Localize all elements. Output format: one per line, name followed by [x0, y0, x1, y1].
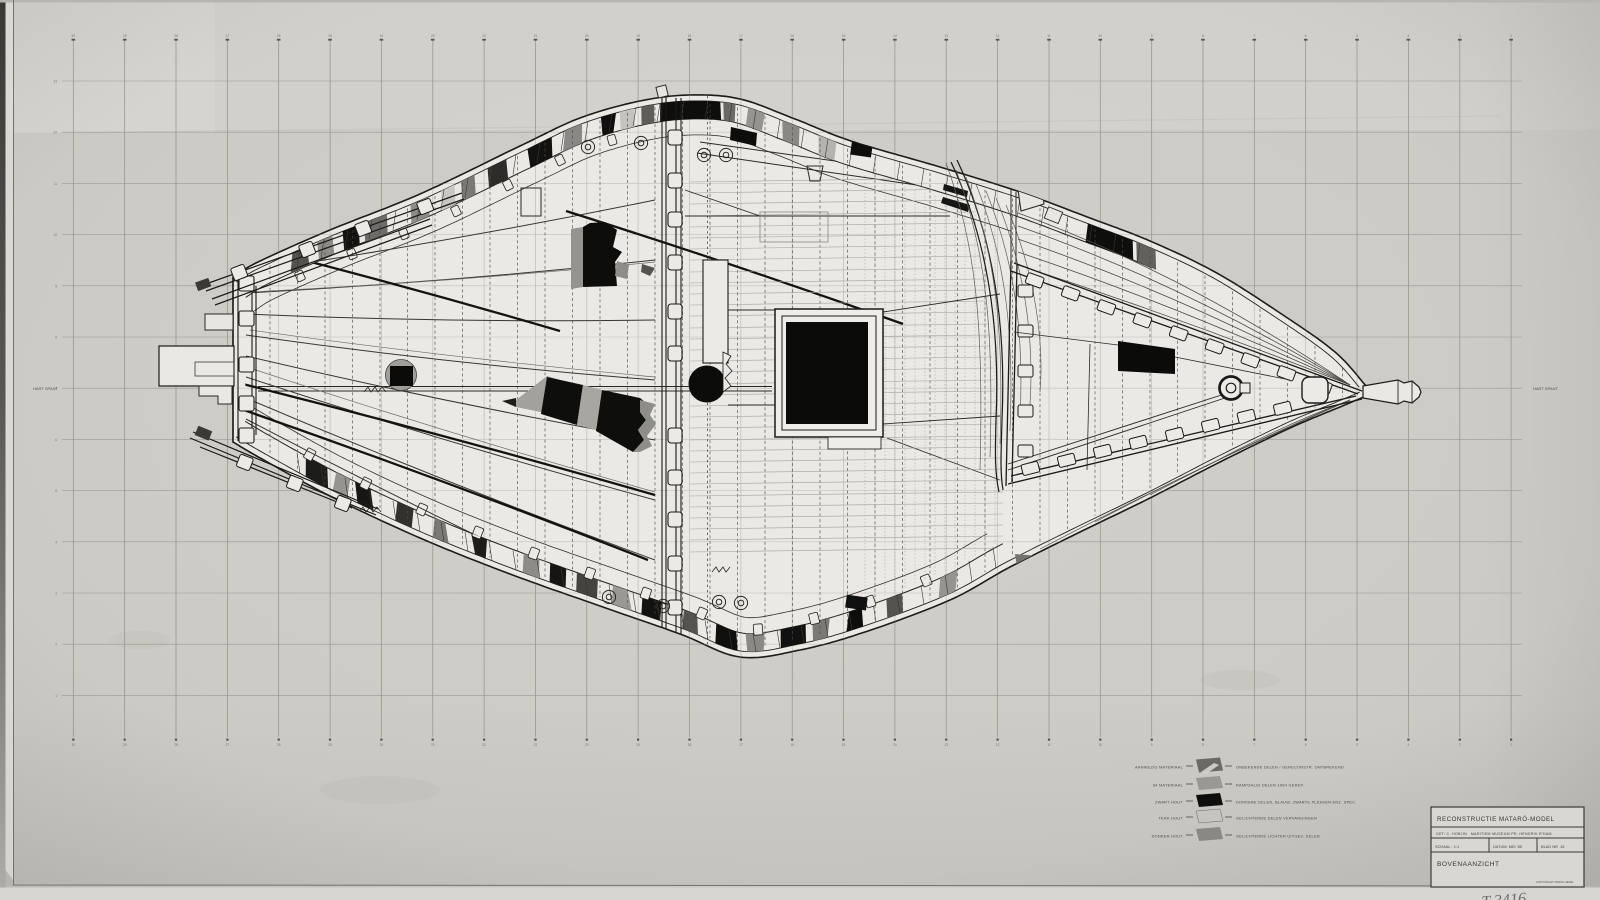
svg-text:RAMPZALIG DELEN 1964 GEREP.: RAMPZALIG DELEN 1964 GEREP.: [1236, 784, 1304, 788]
svg-text:DONKER HOUT: DONKER HOUT: [1152, 835, 1184, 839]
svg-text:64 MATERIAAL: 64 MATERIAAL: [1153, 784, 1183, 788]
svg-text:ONBEKENDE DELEN / GERECONSTR.: ONBEKENDE DELEN / GERECONSTR. ONTBREKEND: [1236, 766, 1344, 770]
svg-text:19: 19: [636, 743, 640, 747]
svg-text:COPYRIGHT PRINS HEND.: COPYRIGHT PRINS HEND.: [1536, 880, 1574, 884]
svg-text:5: 5: [1356, 743, 1358, 747]
svg-text:4: 4: [55, 540, 57, 544]
svg-text:7: 7: [1253, 34, 1255, 38]
svg-text:18: 18: [688, 34, 692, 38]
svg-text:10: 10: [1099, 34, 1103, 38]
svg-text:13: 13: [944, 34, 948, 38]
svg-text:6: 6: [1305, 743, 1307, 747]
svg-text:4: 4: [1408, 34, 1410, 38]
svg-text:23: 23: [431, 743, 435, 747]
svg-text:18: 18: [688, 743, 692, 747]
svg-text:16: 16: [790, 34, 794, 38]
svg-text:26: 26: [277, 34, 281, 38]
svg-text:14: 14: [893, 34, 897, 38]
svg-text:3: 3: [1459, 743, 1461, 747]
svg-text:DONKERE DELEN, BLAUW, ZWARTE P: DONKERE DELEN, BLAUW, ZWARTE PLEKKEN ENZ…: [1236, 801, 1357, 805]
svg-text:4: 4: [1408, 743, 1410, 747]
svg-text:11: 11: [1047, 34, 1051, 38]
svg-text:8: 8: [1202, 34, 1204, 38]
svg-text:GELICHTERDE LICHTER UITGEV. DE: GELICHTERDE LICHTER UITGEV. DELEN: [1236, 835, 1320, 839]
svg-text:TEAK HOUT: TEAK HOUT: [1159, 817, 1184, 821]
svg-text:5: 5: [55, 489, 57, 493]
svg-text:GET: C. HOBIJN MARITIEM MUSE: GET: C. HOBIJN MARITIEM MUSEUM PR. HENDR…: [1436, 832, 1552, 836]
svg-text:29: 29: [123, 34, 127, 38]
svg-text:20: 20: [585, 743, 589, 747]
svg-text:28: 28: [174, 34, 178, 38]
svg-text:SCHAAL: 1:1: SCHAAL: 1:1: [1435, 844, 1459, 849]
svg-text:10: 10: [53, 233, 57, 237]
svg-text:GELICHTERDE DELEN VERVANGINGEN: GELICHTERDE DELEN VERVANGINGEN: [1236, 817, 1317, 821]
svg-text:11: 11: [54, 182, 58, 186]
svg-text:22: 22: [482, 34, 486, 38]
svg-text:1: 1: [55, 694, 57, 698]
svg-text:3: 3: [55, 592, 57, 596]
svg-text:9: 9: [55, 284, 57, 288]
svg-text:DATUM: MEI ’85: DATUM: MEI ’85: [1493, 844, 1522, 849]
svg-text:12: 12: [996, 743, 1000, 747]
svg-text:2: 2: [55, 643, 57, 647]
svg-text:11: 11: [1047, 743, 1051, 747]
svg-text:26: 26: [277, 743, 281, 747]
svg-text:25: 25: [328, 34, 332, 38]
svg-text:5: 5: [1356, 34, 1358, 38]
svg-text:15: 15: [842, 34, 846, 38]
svg-text:RECONSTRUCTIE MATARÓ-MODEL: RECONSTRUCTIE MATARÓ-MODEL: [1437, 816, 1555, 823]
svg-text:2: 2: [1510, 743, 1512, 747]
svg-text:30: 30: [72, 34, 76, 38]
svg-text:22: 22: [482, 743, 486, 747]
svg-text:13: 13: [944, 743, 948, 747]
svg-text:9: 9: [1151, 743, 1153, 747]
svg-text:30: 30: [72, 743, 76, 747]
svg-text:21: 21: [534, 743, 538, 747]
svg-text:20: 20: [585, 34, 589, 38]
svg-text:HART SPANT: HART SPANT: [1533, 386, 1558, 391]
svg-text:13: 13: [53, 80, 57, 84]
svg-text:ZWART HOUT: ZWART HOUT: [1155, 801, 1183, 805]
svg-text:12: 12: [996, 34, 1000, 38]
svg-text:16: 16: [790, 743, 794, 747]
svg-text:28: 28: [174, 743, 178, 747]
svg-text:12: 12: [53, 131, 57, 135]
svg-text:25: 25: [328, 743, 332, 747]
svg-text:9: 9: [1151, 34, 1153, 38]
svg-text:3: 3: [1459, 34, 1461, 38]
svg-text:29: 29: [123, 743, 127, 747]
svg-text:8: 8: [55, 336, 57, 340]
svg-text:8: 8: [1202, 743, 1204, 747]
svg-text:6: 6: [55, 438, 57, 442]
svg-text:24: 24: [380, 743, 384, 747]
svg-text:24: 24: [380, 34, 384, 38]
svg-text:HART SPANT: HART SPANT: [33, 386, 58, 391]
svg-text:19: 19: [636, 34, 640, 38]
svg-text:15: 15: [842, 743, 846, 747]
svg-text:21: 21: [534, 34, 538, 38]
svg-text:7: 7: [1253, 743, 1255, 747]
svg-text:17: 17: [739, 34, 743, 38]
svg-text:23: 23: [431, 34, 435, 38]
svg-text:14: 14: [893, 743, 897, 747]
svg-text:27: 27: [226, 743, 230, 747]
svg-text:AANWEZIG MATERIAAL: AANWEZIG MATERIAAL: [1135, 766, 1183, 770]
svg-text:27: 27: [226, 34, 230, 38]
svg-text:10: 10: [1099, 743, 1103, 747]
svg-text:BLAD NR 15: BLAD NR 15: [1541, 844, 1564, 849]
svg-text:6: 6: [1305, 34, 1307, 38]
svg-text:BOVENAANZICHT: BOVENAANZICHT: [1437, 861, 1500, 868]
svg-text:2: 2: [1510, 34, 1512, 38]
svg-text:17: 17: [739, 743, 743, 747]
